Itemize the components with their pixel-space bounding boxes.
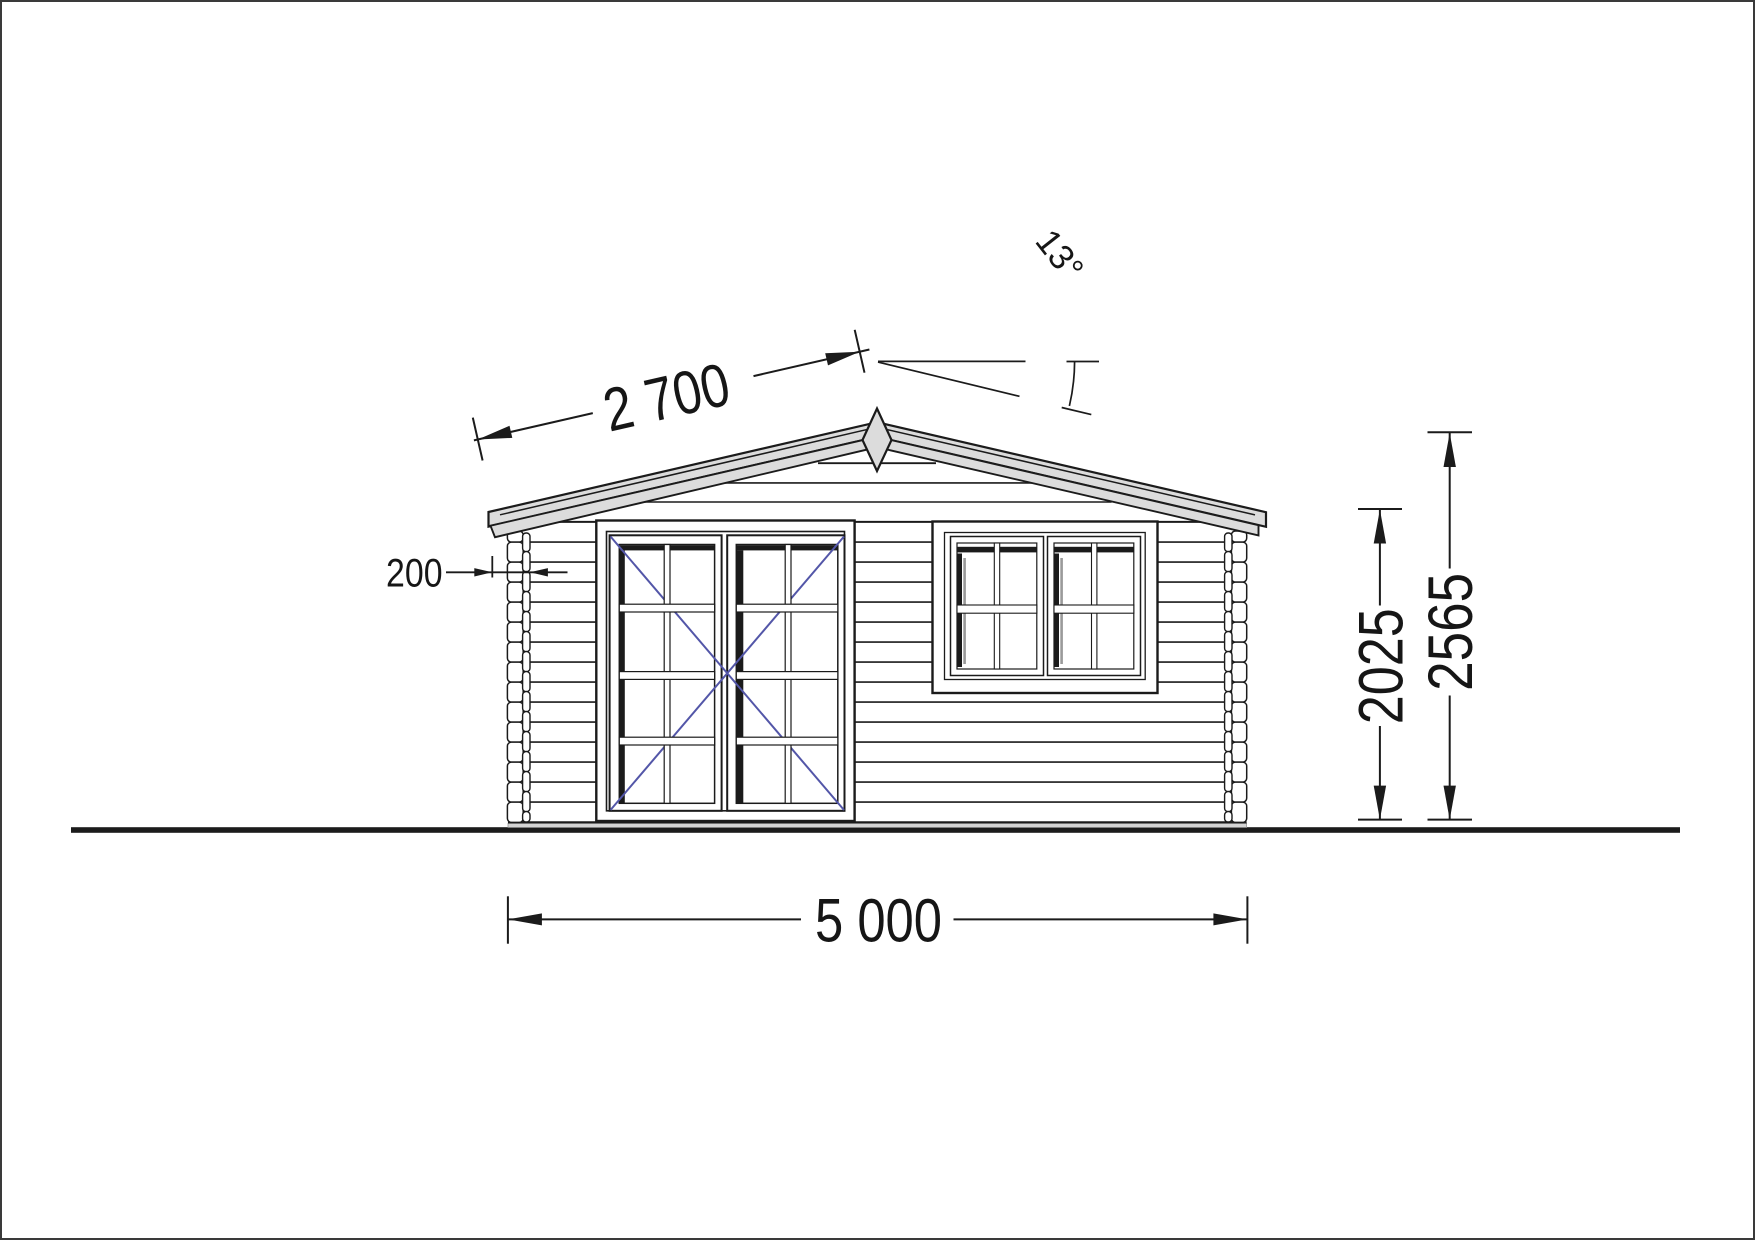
svg-text:2025: 2025 — [1346, 608, 1416, 724]
svg-text:200: 200 — [386, 552, 443, 596]
svg-text:5 000: 5 000 — [815, 886, 942, 954]
svg-text:2565: 2565 — [1416, 573, 1486, 691]
